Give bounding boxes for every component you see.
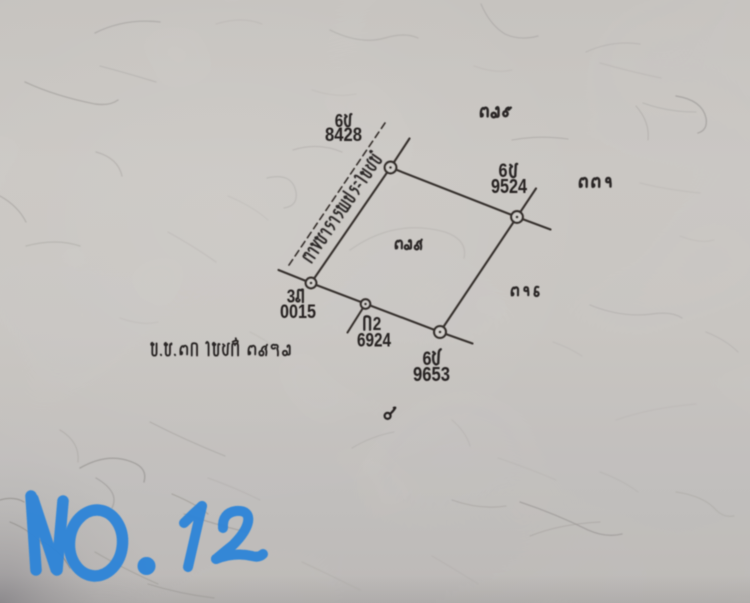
svg-text:9524: 9524 [491,176,528,198]
svg-text:6924: 6924 [357,331,391,352]
svg-text:0015: 0015 [280,301,316,323]
svg-text:9653: 9653 [413,364,450,386]
svg-text:8428: 8428 [325,124,362,146]
